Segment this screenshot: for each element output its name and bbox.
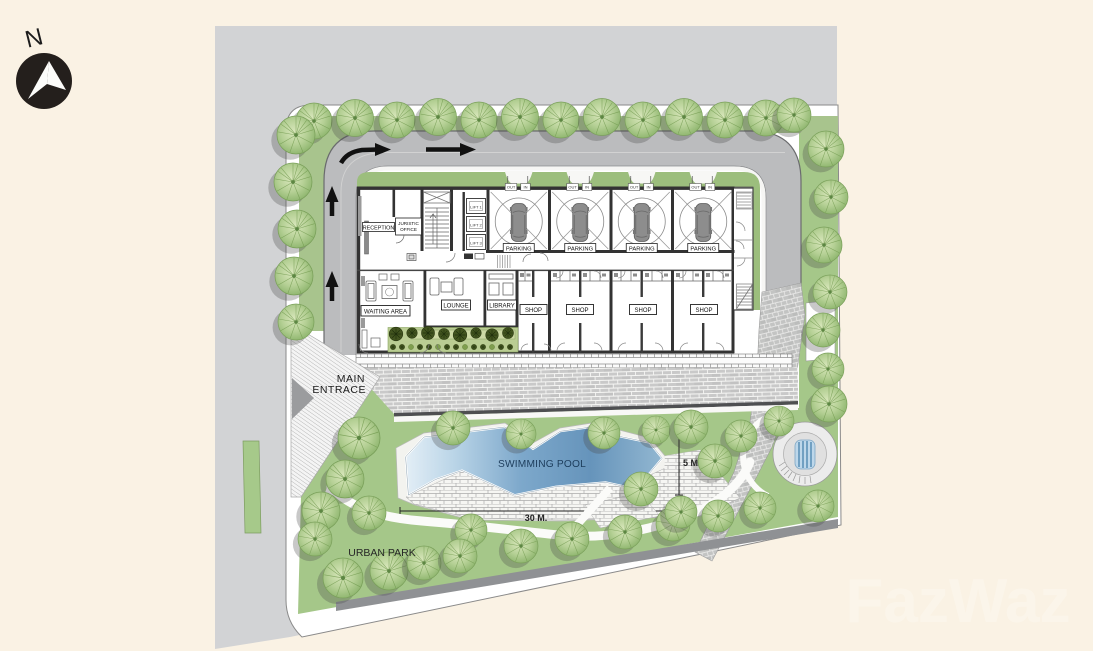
svg-text:JURISTIC: JURISTIC (398, 221, 419, 226)
svg-text:30 M.: 30 M. (525, 513, 548, 523)
svg-text:URBAN PARK: URBAN PARK (348, 547, 416, 559)
svg-text:LOUNGE: LOUNGE (443, 304, 468, 310)
svg-text:OFFICE: OFFICE (400, 227, 417, 232)
svg-text:LIFT 1: LIFT 1 (470, 205, 482, 210)
svg-text:RECEPTION: RECEPTION (363, 226, 395, 232)
svg-text:SHOP: SHOP (525, 308, 542, 314)
svg-text:LIFT 2: LIFT 2 (470, 223, 482, 228)
svg-text:LIFT 3: LIFT 3 (470, 241, 482, 246)
svg-text:SHOP: SHOP (695, 308, 712, 314)
svg-text:FazWaz: FazWaz (845, 567, 1070, 636)
svg-text:LIBRARY: LIBRARY (489, 304, 515, 310)
svg-text:SHOP: SHOP (571, 308, 588, 314)
svg-text:ENTRACE: ENTRACE (312, 384, 366, 396)
svg-text:WAITING AREA: WAITING AREA (364, 310, 407, 316)
svg-text:SHOP: SHOP (634, 308, 651, 314)
svg-text:SWIMMING POOL: SWIMMING POOL (498, 459, 586, 470)
